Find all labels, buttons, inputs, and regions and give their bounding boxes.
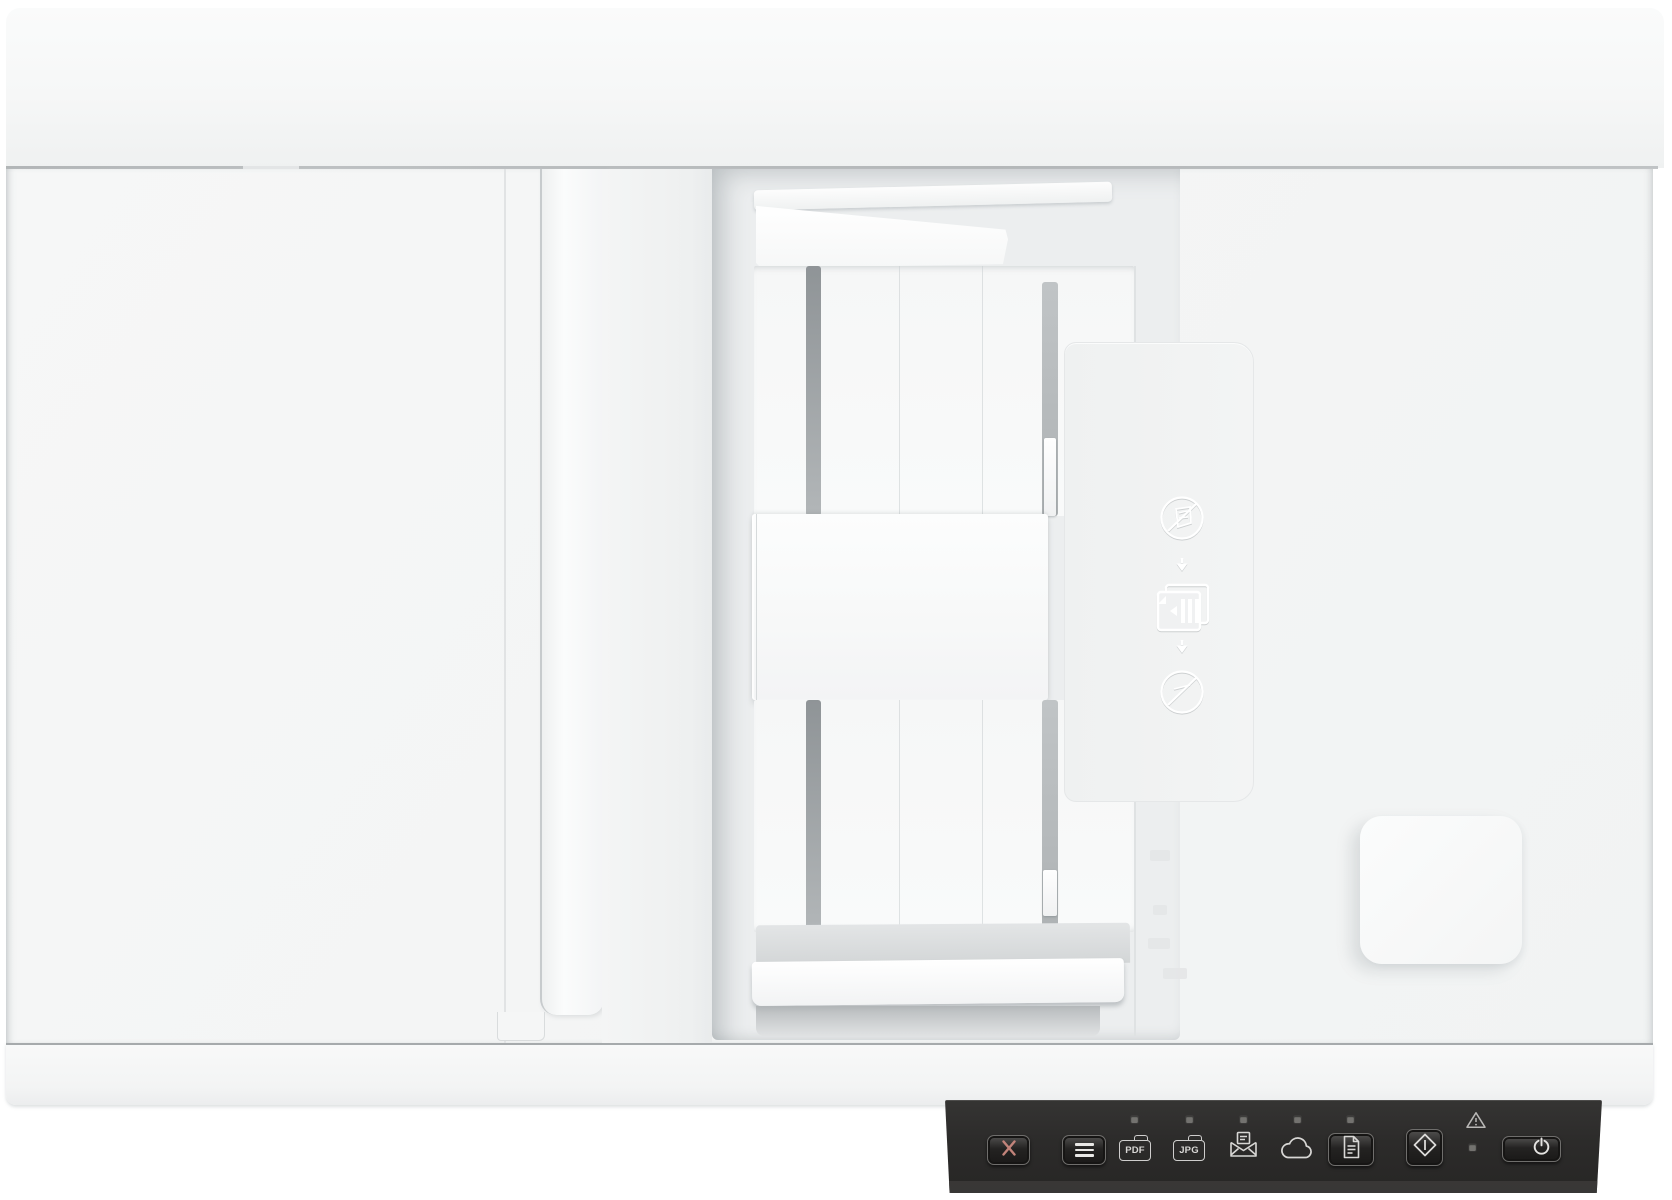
- paper-size-mark: [1148, 938, 1170, 949]
- no-stapled-media-icon: [1157, 493, 1207, 543]
- plate-seam: [982, 266, 983, 516]
- document-icon: [1341, 1135, 1362, 1164]
- error-led: [1469, 1144, 1476, 1151]
- document-button[interactable]: [1328, 1133, 1374, 1166]
- plate-seam: [899, 700, 900, 932]
- start-scan-icon: [1412, 1132, 1438, 1163]
- paper-size-mark: [1163, 968, 1187, 979]
- pdf-led: [1131, 1116, 1138, 1123]
- cloud-icon: [1279, 1137, 1315, 1165]
- jpg-led: [1186, 1116, 1193, 1123]
- jpg-label: JPG: [1179, 1146, 1199, 1156]
- scanner-rear-band: [6, 8, 1664, 168]
- document-led: [1347, 1116, 1354, 1123]
- pdf-label: PDF: [1125, 1146, 1145, 1156]
- hinge-step: [497, 1012, 545, 1041]
- lid-seam: [504, 169, 506, 1043]
- scanner-front-edge: [6, 1043, 1653, 1105]
- cancel-button[interactable]: [987, 1135, 1030, 1165]
- control-panel: PDF JPG: [945, 1100, 1602, 1193]
- guide-slot: [806, 700, 821, 932]
- menu-button[interactable]: [1062, 1135, 1106, 1165]
- scanner-product-photo: PDF JPG: [0, 0, 1672, 1200]
- power-icon: [1532, 1137, 1551, 1161]
- scan-to-jpg-button[interactable]: JPG: [1172, 1134, 1206, 1162]
- guide-slot: [806, 266, 821, 516]
- crossbar-edge: [756, 514, 757, 700]
- jpg-folder-icon: JPG: [1173, 1140, 1205, 1161]
- plate-seam: [982, 700, 983, 932]
- scan-to-email-button[interactable]: [1226, 1132, 1260, 1162]
- paper-guide-slider[interactable]: [1044, 438, 1056, 516]
- output-slot-shadow: [756, 1006, 1100, 1036]
- email-led: [1240, 1116, 1247, 1123]
- down-arrow-icon: [1175, 640, 1189, 654]
- adf-hinge-bar: [540, 169, 604, 1015]
- paper-guide-slider[interactable]: [1043, 870, 1057, 916]
- output-tray-bar[interactable]: [752, 958, 1124, 1006]
- feed-documents-icon: [1150, 581, 1214, 635]
- x-icon: [999, 1139, 1019, 1162]
- paper-size-mark: [1150, 850, 1170, 861]
- scan-to-pdf-button[interactable]: PDF: [1118, 1134, 1152, 1162]
- down-arrow-icon: [1175, 558, 1189, 572]
- scan-to-cloud-button[interactable]: [1279, 1139, 1315, 1163]
- email-icon: [1228, 1131, 1259, 1163]
- panel-bevel: [945, 1181, 1602, 1193]
- output-extension-pad: [1360, 816, 1522, 964]
- no-fragile-media-icon: [1157, 667, 1207, 717]
- hinge-transition: [602, 169, 712, 1043]
- menu-icon: [1075, 1143, 1094, 1157]
- adf-center-crossbar: [752, 514, 1048, 700]
- paper-size-mark: [1153, 905, 1167, 915]
- pdf-folder-icon: PDF: [1119, 1140, 1151, 1161]
- start-scan-button[interactable]: [1406, 1129, 1443, 1166]
- adf-icon-plate: [1064, 342, 1254, 802]
- plate-seam: [899, 266, 900, 516]
- cloud-led: [1294, 1116, 1301, 1123]
- power-button[interactable]: [1502, 1136, 1561, 1162]
- warning-triangle-icon: [1466, 1111, 1486, 1134]
